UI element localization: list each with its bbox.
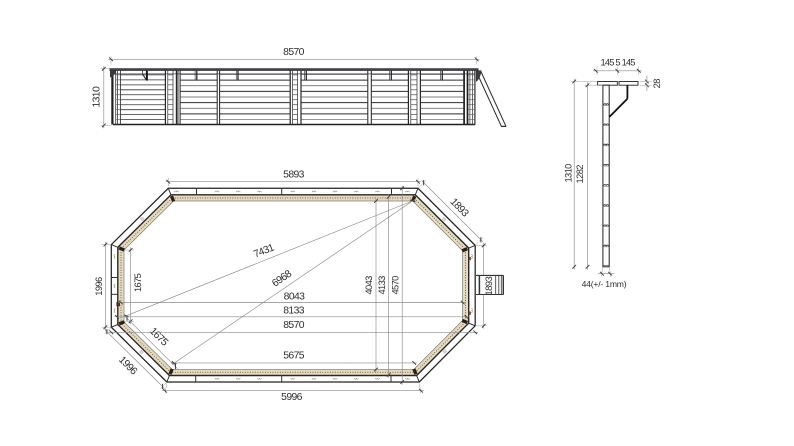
svg-text:1675: 1675 [133, 273, 143, 292]
svg-text:1893: 1893 [484, 276, 495, 295]
svg-text:1996: 1996 [94, 277, 104, 296]
svg-text:1310: 1310 [92, 86, 103, 108]
svg-text:8570: 8570 [283, 320, 305, 331]
svg-text:28: 28 [652, 79, 662, 89]
svg-text:8570: 8570 [283, 47, 305, 58]
svg-text:4043: 4043 [364, 276, 374, 295]
svg-text:8133: 8133 [283, 306, 305, 317]
svg-text:4570: 4570 [391, 276, 401, 295]
svg-text:5996: 5996 [281, 392, 303, 403]
svg-text:1282: 1282 [575, 165, 585, 184]
svg-text:4133: 4133 [377, 276, 387, 295]
svg-text:145 5 145: 145 5 145 [601, 57, 636, 67]
svg-text:1310: 1310 [563, 164, 573, 183]
svg-text:5675: 5675 [283, 351, 305, 362]
svg-text:8043: 8043 [284, 292, 306, 303]
svg-text:44(+/- 1mm): 44(+/- 1mm) [582, 279, 627, 289]
svg-text:5893: 5893 [283, 170, 305, 181]
